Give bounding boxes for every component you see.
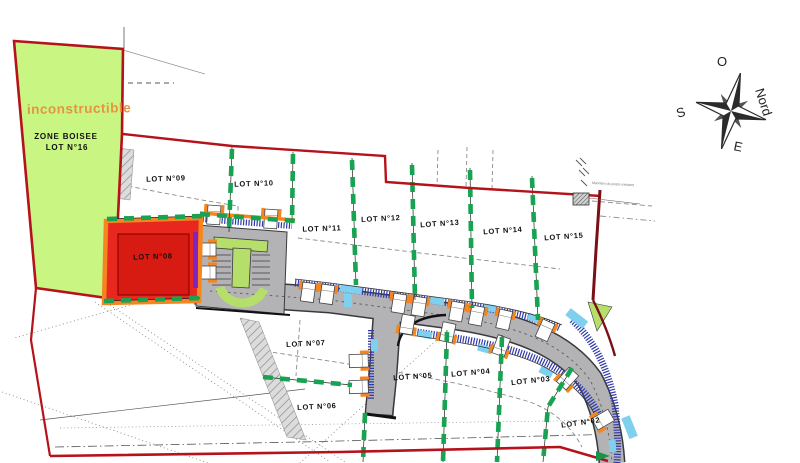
lot-label-03: LOT N°03	[511, 374, 551, 387]
inconstructible-label: inconstructible	[27, 100, 132, 117]
lot-label-13: LOT N°13	[420, 218, 460, 230]
lot-label-09: LOT N°09	[146, 173, 186, 183]
transformer-station	[573, 193, 640, 205]
lot-label-11: LOT N°11	[302, 223, 341, 233]
lot-label-06: LOT N°06	[297, 401, 337, 412]
site-plan-page: inconstructible ZONE BOISEE LOT N°16 Mai…	[0, 0, 800, 463]
zone-boisee-label: ZONE BOISEE	[34, 132, 97, 141]
lot-16-label: LOT N°16	[46, 143, 89, 152]
site-plan: inconstructible ZONE BOISEE LOT N°16 Mai…	[0, 0, 800, 463]
lot-label-15: LOT N°15	[544, 231, 584, 243]
lot-label-05: LOT N°05	[393, 371, 433, 383]
lot-label-08: LOT N°08	[133, 251, 173, 261]
lot-label-12: LOT N°12	[361, 213, 401, 224]
lot-label-10: LOT N°10	[234, 178, 274, 188]
lot-label-14: LOT N°14	[483, 225, 523, 237]
compass-o-label: O	[717, 54, 727, 69]
compass-e-label: E	[732, 138, 744, 155]
lot-label-04: LOT N°04	[451, 366, 491, 378]
lot-label-07: LOT N°07	[286, 338, 326, 349]
compass-rose: O Nord S E	[674, 54, 775, 158]
transformer-note: Maintien du poste existant	[592, 181, 634, 187]
compass-nord-label: Nord	[752, 86, 775, 117]
compass-s-label: S	[674, 104, 687, 121]
